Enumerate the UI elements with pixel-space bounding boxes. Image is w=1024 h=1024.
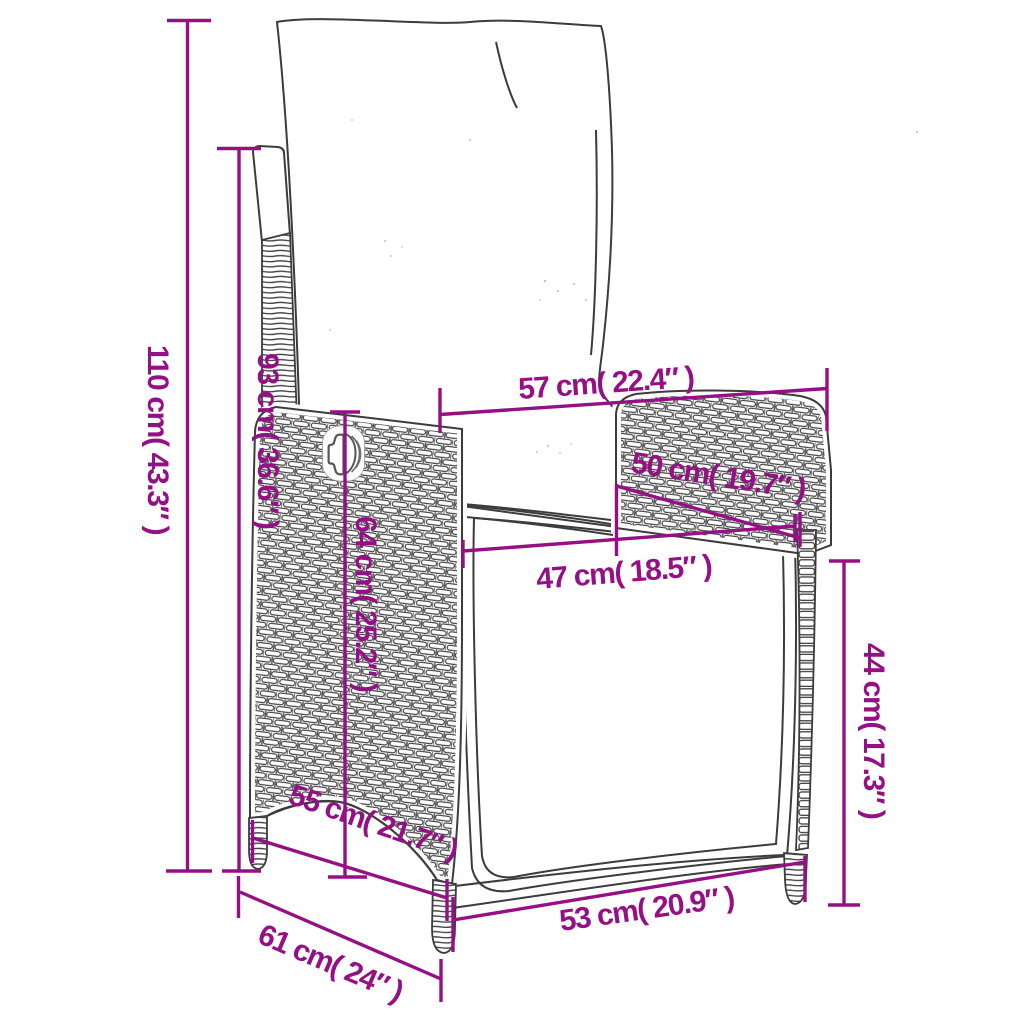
svg-text:110 cm( 43.3″ ): 110 cm( 43.3″ )	[141, 345, 174, 535]
svg-text:64 cm( 25.2″ ): 64 cm( 25.2″ )	[349, 516, 382, 692]
svg-text:93 cm( 36.6″ ): 93 cm( 36.6″ )	[251, 353, 284, 529]
svg-text:47 cm( 18.5″ ): 47 cm( 18.5″ )	[535, 549, 713, 596]
svg-text:44 cm( 17.3″ ): 44 cm( 17.3″ )	[857, 643, 890, 819]
